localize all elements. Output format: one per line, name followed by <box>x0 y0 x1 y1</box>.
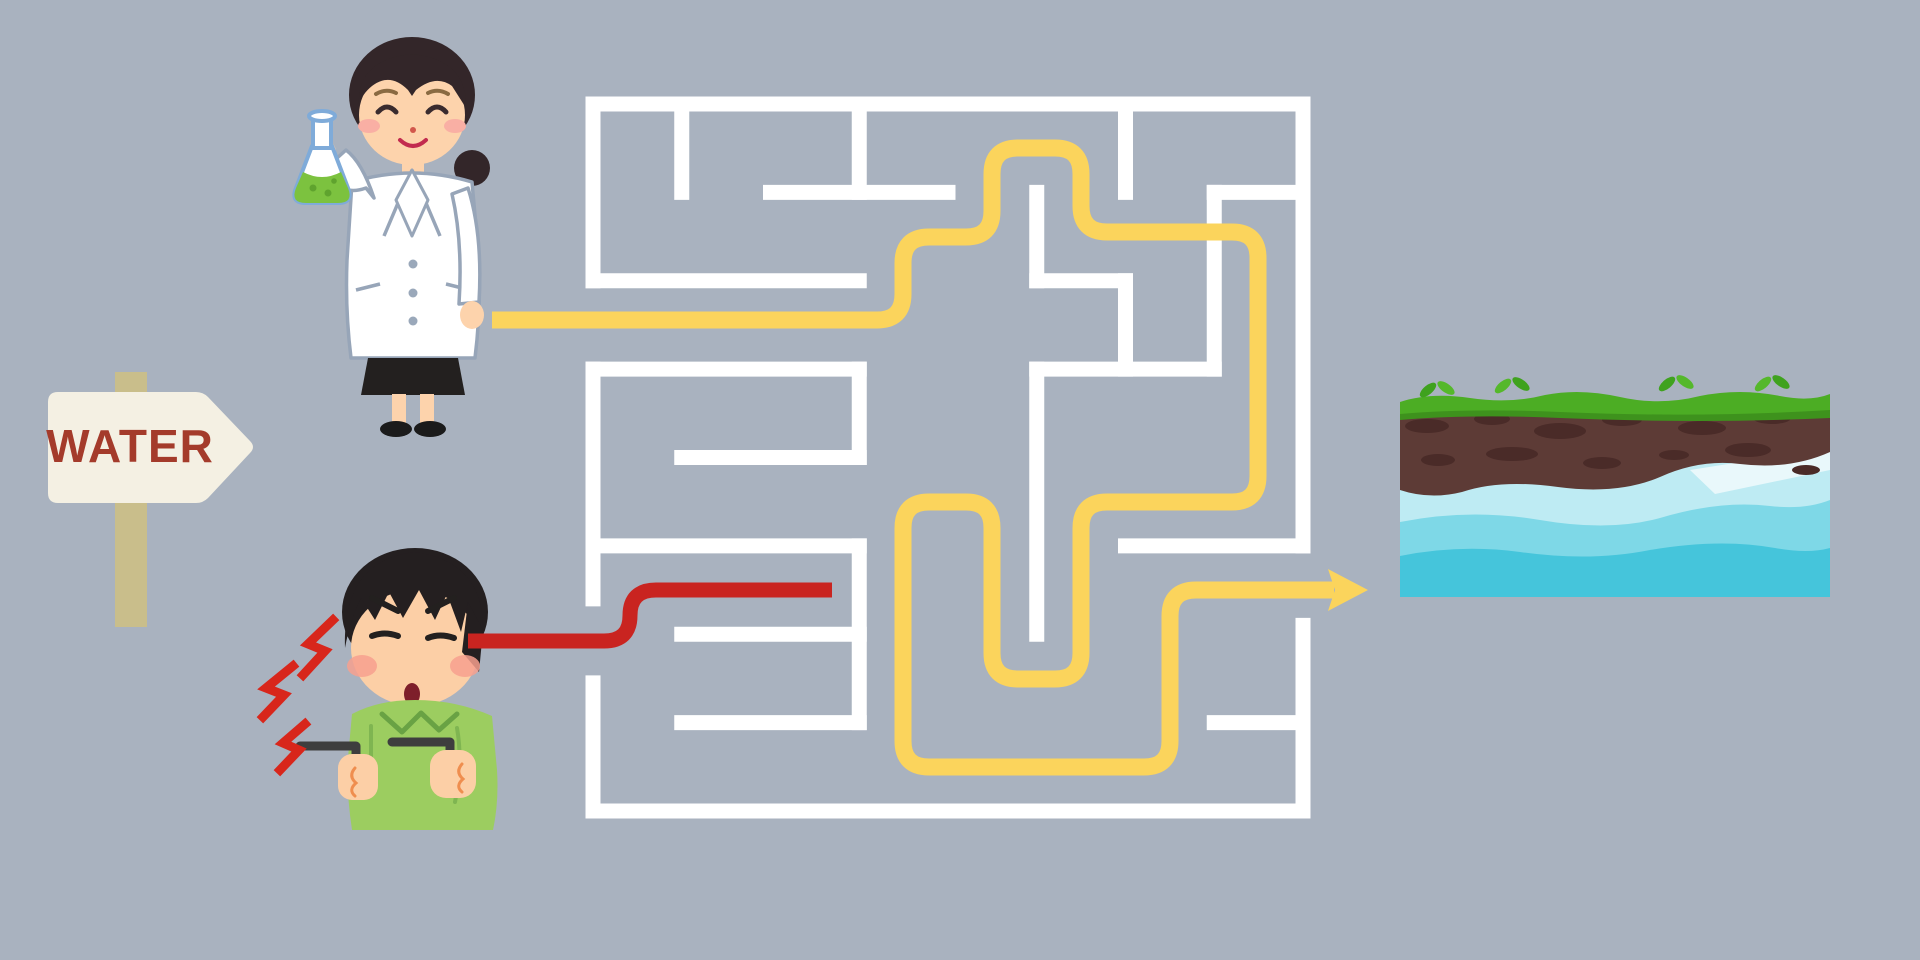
scientist-figure <box>294 37 490 437</box>
dowser-blush-right <box>450 655 480 677</box>
scientist-blush-left <box>358 119 380 133</box>
maze-paths <box>468 148 1368 767</box>
dowser-eye-right <box>428 636 454 639</box>
dowser-figure <box>263 548 498 830</box>
sign-label: WATER <box>46 420 214 472</box>
scientist-button <box>409 317 418 326</box>
dowser-blush-left <box>347 655 377 677</box>
dowser-fist-right <box>430 750 476 798</box>
illustration-canvas: WATER <box>0 0 1920 960</box>
scientist-hand-right <box>460 301 484 329</box>
maze-walls <box>593 104 1303 811</box>
water-signpost: WATER <box>46 372 253 627</box>
scientist-skirt <box>361 358 465 395</box>
dowser-fist-left <box>338 754 378 800</box>
scientist-button <box>409 260 418 269</box>
scientist-button <box>409 289 418 298</box>
dowser-eye-left <box>372 634 398 637</box>
scientist-nose <box>410 127 416 133</box>
illustration-stage: WATER <box>0 0 1920 960</box>
scientist-shoe <box>414 421 446 437</box>
scientist-blush-right <box>444 119 466 133</box>
scientist-shoe <box>380 421 412 437</box>
groundwater-illustration <box>1400 373 1830 597</box>
